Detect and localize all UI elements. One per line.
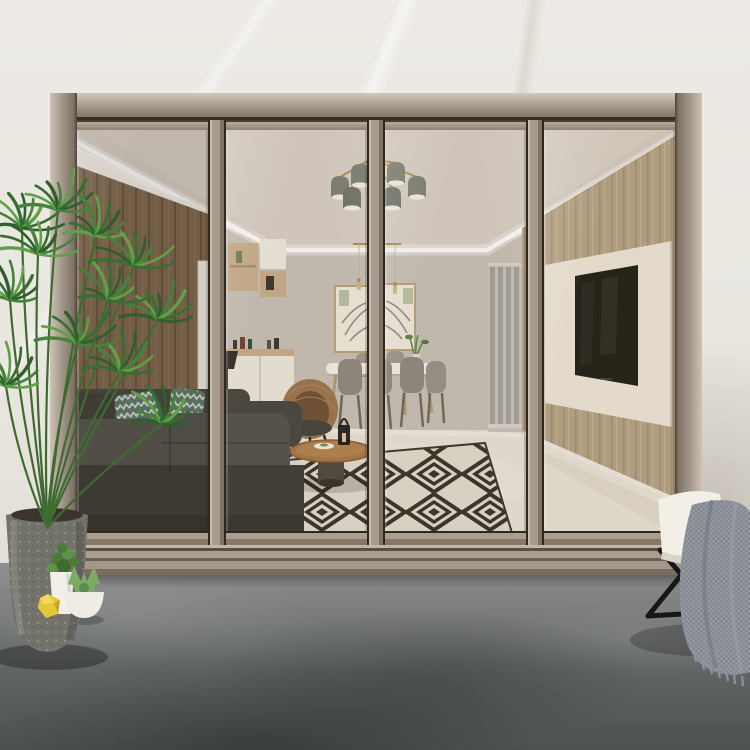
foreground — [0, 0, 750, 750]
patio-chair — [630, 491, 750, 686]
patio-door-scene — [0, 0, 750, 750]
throw-blanket — [680, 500, 750, 686]
palm-fronds — [0, 169, 192, 528]
